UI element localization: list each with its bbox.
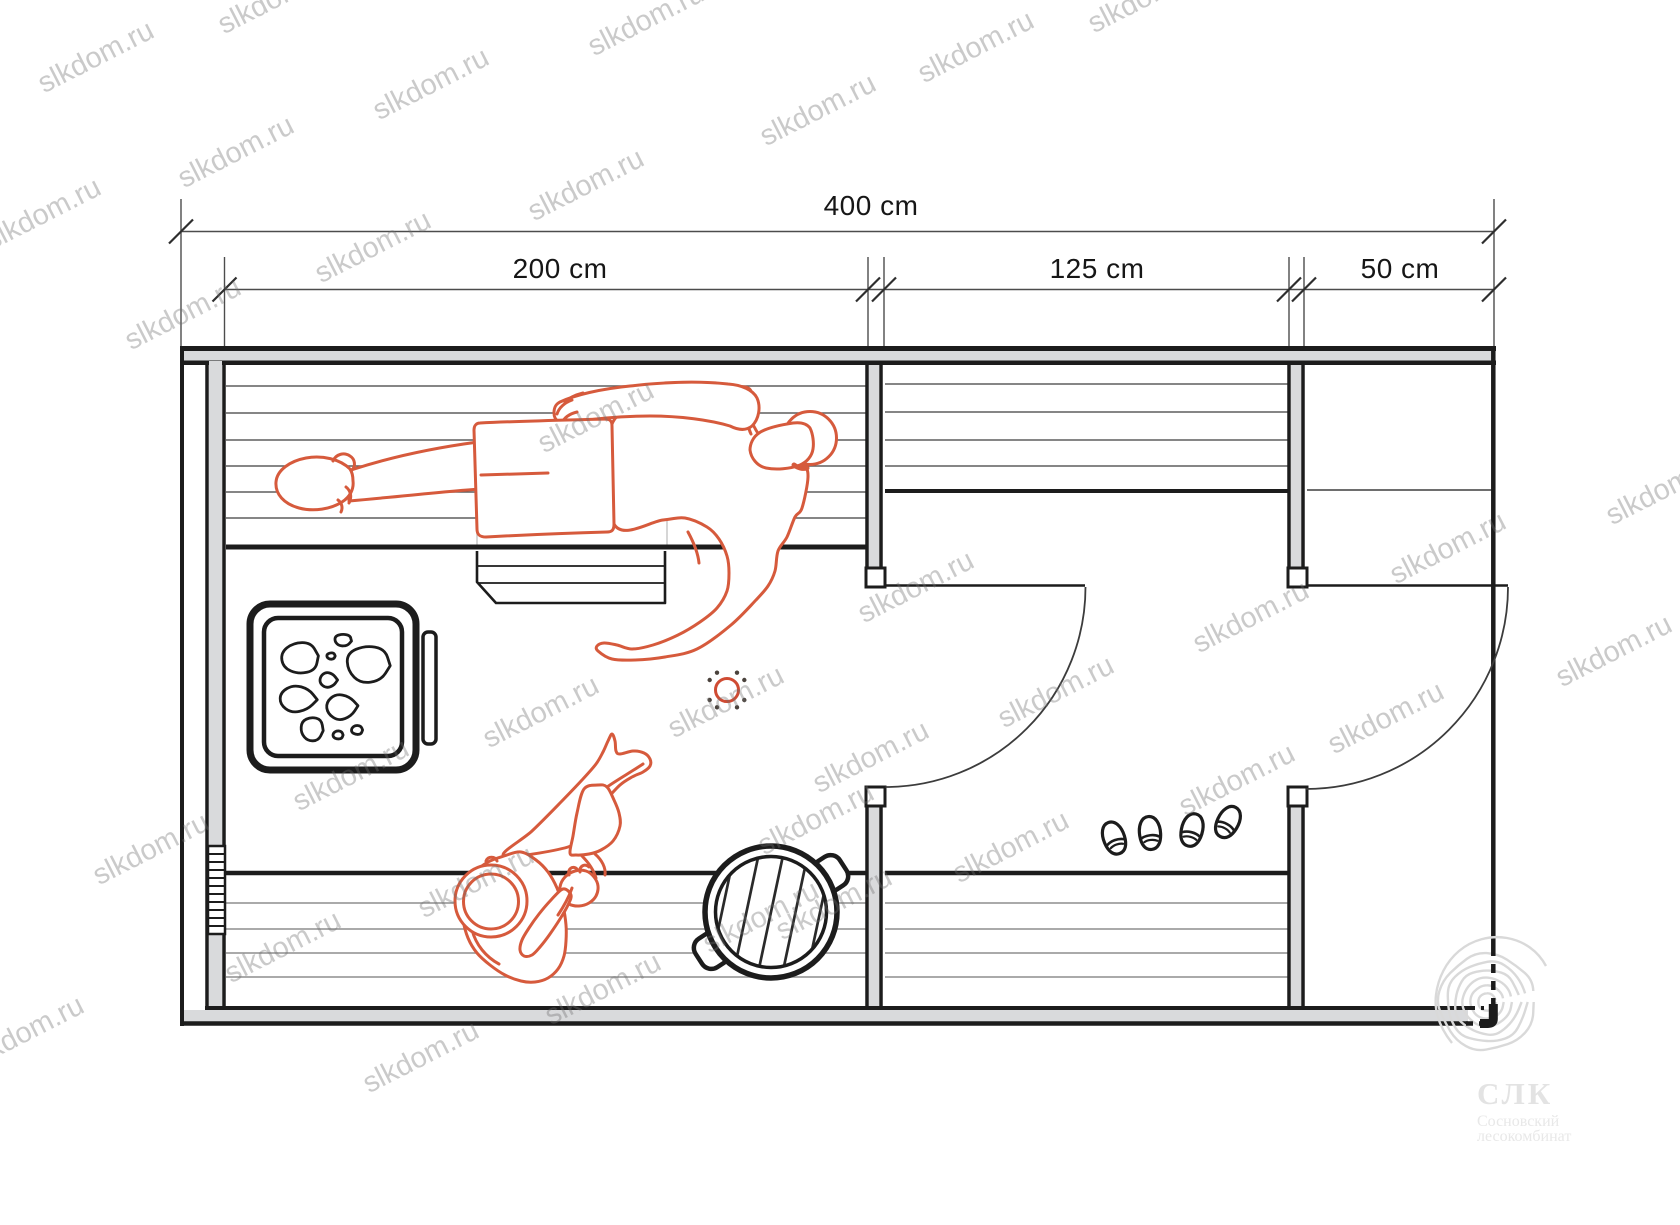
svg-text:slkdom.ru: slkdom.ru [1323,675,1450,761]
svg-text:slkdom.ru: slkdom.ru [213,0,340,41]
svg-text:200 cm: 200 cm [513,253,608,284]
svg-text:slkdom.ru: slkdom.ru [120,271,247,357]
svg-text:slkdom.ru: slkdom.ru [1083,0,1210,40]
svg-text:slkdom.ru: slkdom.ru [0,989,89,1075]
svg-text:slkdom.ru: slkdom.ru [368,41,495,127]
svg-text:125 cm: 125 cm [1050,253,1145,284]
svg-text:slkdom.ru: slkdom.ru [1188,574,1315,660]
svg-text:slkdom.ru: slkdom.ru [0,171,106,257]
svg-text:slkdom.ru: slkdom.ru [948,804,1075,890]
svg-text:лесокомбинат: лесокомбинат [1477,1128,1571,1145]
svg-text:400 cm: 400 cm [824,190,919,221]
svg-text:slkdom.ru: slkdom.ru [993,649,1120,735]
svg-text:slkdom.ru: slkdom.ru [173,109,300,195]
svg-text:slkdom.ru: slkdom.ru [1551,608,1678,694]
svg-text:slkdom.ru: slkdom.ru [583,0,710,63]
svg-text:slkdom.ru: slkdom.ru [1601,446,1680,532]
svg-text:slkdom.ru: slkdom.ru [523,142,650,228]
svg-text:slkdom.ru: slkdom.ru [913,4,1040,90]
svg-text:slkdom.ru: slkdom.ru [33,14,160,100]
svg-text:slkdom.ru: slkdom.ru [310,204,437,290]
svg-text:slkdom.ru: slkdom.ru [755,67,882,153]
svg-text:slkdom.ru: slkdom.ru [663,659,790,745]
svg-text:slkdom.ru: slkdom.ru [358,1014,485,1100]
svg-text:slkdom.ru: slkdom.ru [478,669,605,755]
svg-text:50 cm: 50 cm [1361,253,1440,284]
svg-text:СЛК: СЛК [1477,1076,1553,1111]
svg-text:slkdom.ru: slkdom.ru [88,806,215,892]
